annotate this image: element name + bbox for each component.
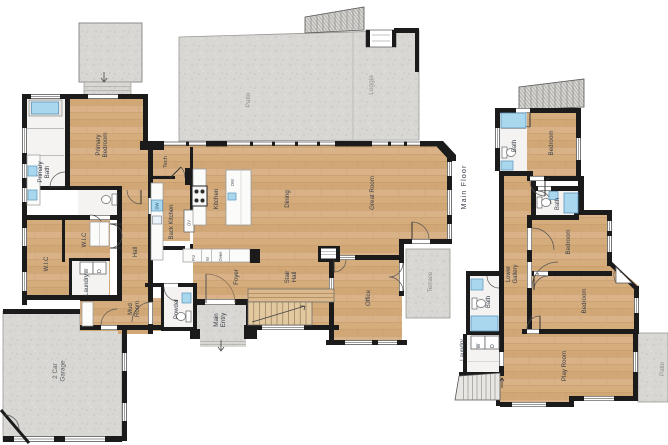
svg-text:Bath: Bath bbox=[486, 296, 492, 308]
svg-text:Patio: Patio bbox=[245, 92, 252, 107]
svg-text:Oven: Oven bbox=[218, 251, 223, 262]
svg-text:Bedroom: Bedroom bbox=[565, 229, 572, 254]
svg-text:W: W bbox=[476, 343, 482, 348]
svg-text:Hall: Hall bbox=[133, 247, 139, 257]
svg-text:Patio: Patio bbox=[659, 361, 666, 376]
svg-text:W: W bbox=[84, 268, 90, 273]
svg-text:Great Room: Great Room bbox=[369, 176, 376, 210]
svg-text:MudRoom: MudRoom bbox=[128, 301, 141, 317]
svg-text:Back Kitchen: Back Kitchen bbox=[169, 204, 175, 239]
svg-text:Frz: Frz bbox=[191, 255, 196, 261]
svg-text:CL: CL bbox=[528, 315, 533, 321]
svg-text:Tech: Tech bbox=[163, 156, 169, 168]
svg-text:Powder: Powder bbox=[174, 299, 180, 319]
svg-text:StairHall: StairHall bbox=[284, 271, 298, 284]
svg-text:Bedroom: Bedroom bbox=[548, 130, 555, 155]
svg-text:Bath: Bath bbox=[512, 140, 518, 152]
svg-text:Loggia: Loggia bbox=[368, 75, 375, 95]
svg-text:D: D bbox=[490, 344, 496, 348]
svg-text:d: d bbox=[545, 178, 550, 180]
svg-text:OV: OV bbox=[187, 220, 192, 226]
svg-text:Foyer: Foyer bbox=[233, 269, 240, 285]
svg-text:DW: DW bbox=[230, 179, 235, 186]
svg-text:DW: DW bbox=[155, 202, 160, 209]
svg-text:Laundry: Laundry bbox=[460, 339, 466, 361]
svg-text:Main Floor: Main Floor bbox=[459, 165, 468, 210]
svg-text:d: d bbox=[618, 271, 623, 273]
svg-text:Dining: Dining bbox=[284, 190, 291, 208]
svg-text:Play Room: Play Room bbox=[561, 351, 568, 381]
svg-text:D: D bbox=[97, 269, 103, 273]
svg-text:PrimaryBedroom: PrimaryBedroom bbox=[95, 132, 109, 157]
svg-text:MainEntry: MainEntry bbox=[213, 312, 227, 327]
svg-text:d: d bbox=[535, 273, 540, 275]
svg-text:Office: Office bbox=[365, 289, 372, 306]
svg-text:W.I.C: W.I.C bbox=[44, 256, 50, 271]
svg-text:Kitchen: Kitchen bbox=[213, 188, 220, 209]
svg-text:Bath: Bath bbox=[555, 198, 561, 210]
svg-text:Bedroom: Bedroom bbox=[581, 288, 588, 313]
svg-text:Laundry: Laundry bbox=[84, 274, 90, 296]
svg-text:W.I.C: W.I.C bbox=[82, 232, 88, 247]
svg-text:W: W bbox=[205, 257, 210, 261]
svg-text:LowerGallery: LowerGallery bbox=[506, 264, 519, 283]
svg-text:Terrace: Terrace bbox=[427, 271, 434, 292]
